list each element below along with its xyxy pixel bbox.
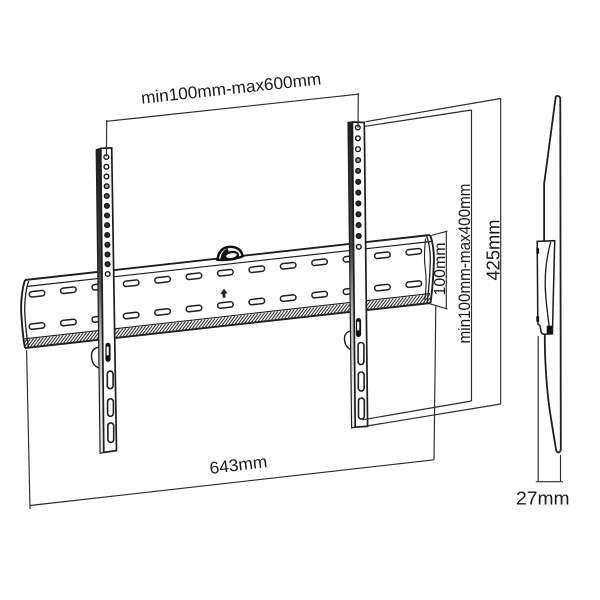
svg-text:100mm: 100mm bbox=[432, 243, 449, 296]
svg-text:27mm: 27mm bbox=[516, 489, 570, 509]
svg-text:min100mm-max600mm: min100mm-max600mm bbox=[140, 69, 322, 107]
svg-text:425mm: 425mm bbox=[483, 220, 503, 281]
svg-text:643mm: 643mm bbox=[208, 452, 268, 478]
svg-text:min100mm-max400mm: min100mm-max400mm bbox=[455, 184, 474, 344]
